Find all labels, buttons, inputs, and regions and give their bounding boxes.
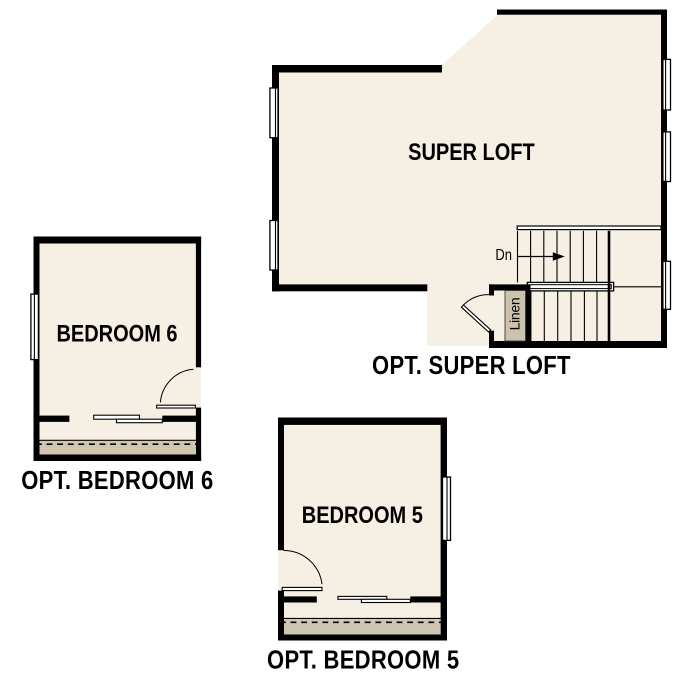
svg-text:OPT. SUPER LOFT: OPT. SUPER LOFT: [372, 351, 571, 380]
svg-text:BEDROOM 6: BEDROOM 6: [56, 320, 177, 347]
svg-text:OPT. BEDROOM 5: OPT. BEDROOM 5: [267, 646, 459, 675]
svg-text:Linen: Linen: [507, 298, 523, 331]
svg-text:OPT. BEDROOM 6: OPT. BEDROOM 6: [21, 466, 213, 495]
svg-text:Dn: Dn: [495, 247, 512, 264]
svg-text:SUPER LOFT: SUPER LOFT: [408, 138, 535, 165]
svg-text:BEDROOM 5: BEDROOM 5: [302, 501, 423, 528]
